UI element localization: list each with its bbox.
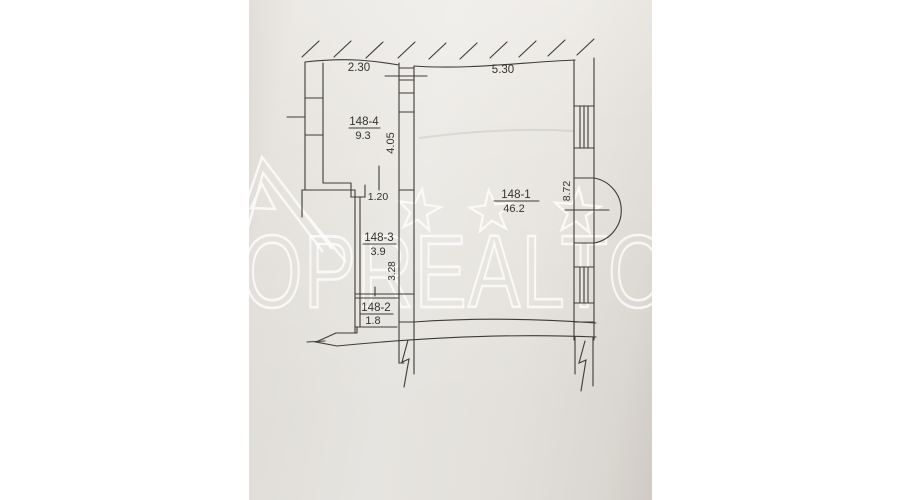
dim-height-room4: 4.05: [385, 132, 397, 153]
dim-width-room1: 5.30: [492, 64, 514, 76]
paper-crease: [419, 130, 574, 138]
dim-height-room1: 8.72: [561, 181, 573, 202]
dim-height-hall: 3.28: [387, 261, 398, 281]
top-wall-hatching: [302, 39, 594, 59]
screenshot-root: OPREALTO: [0, 0, 900, 500]
top-wall: [305, 60, 575, 67]
window-top-icon: [580, 106, 588, 148]
room-label-148-2: 148-2: [361, 302, 390, 314]
room-label-148-1: 148-1: [501, 189, 530, 201]
room-area-148-1: 46.2: [503, 203, 524, 215]
room-label-148-4: 148-4: [349, 116, 379, 128]
watermark-text: OPREALTO: [249, 214, 652, 329]
room-area-148-3: 3.9: [370, 246, 385, 258]
floorplan-drawing: OPREALTO: [249, 0, 652, 500]
floorplan-photo-paper: OPREALTO: [249, 0, 652, 500]
left-wall: [287, 62, 323, 217]
room-area-148-2: 1.8: [365, 315, 380, 327]
room-area-148-4: 9.3: [355, 130, 370, 142]
dim-width-hall: 1.20: [368, 191, 389, 203]
wall-break-left: [399, 334, 414, 387]
dim-width-room4: 2.30: [348, 62, 370, 74]
room-label-148-3: 148-3: [364, 232, 393, 244]
wall-break-right: [575, 337, 593, 391]
